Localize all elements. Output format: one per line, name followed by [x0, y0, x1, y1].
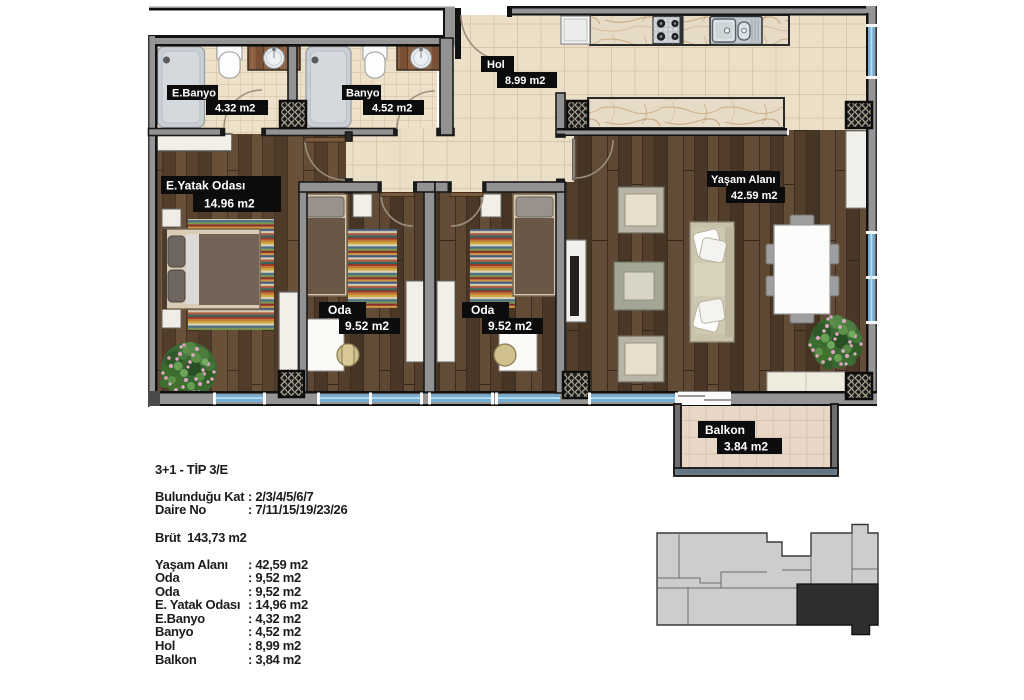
- svg-text:4.52 m2: 4.52 m2: [372, 103, 412, 115]
- svg-text:Oda: Oda: [471, 303, 495, 317]
- svg-text:3.84 m2: 3.84 m2: [724, 440, 768, 454]
- svg-text:E.Banyo: E.Banyo: [172, 88, 216, 100]
- svg-text:4.32 m2: 4.32 m2: [215, 103, 255, 115]
- svg-text:Banyo: Banyo: [346, 88, 380, 100]
- svg-text:9.52 m2: 9.52 m2: [345, 319, 389, 333]
- svg-text:E.Yatak Odası: E.Yatak Odası: [166, 179, 245, 193]
- svg-text:42.59 m2: 42.59 m2: [731, 190, 777, 202]
- svg-text:Balkon: Balkon: [705, 423, 745, 437]
- svg-text:Yaşam Alanı: Yaşam Alanı: [711, 174, 775, 186]
- svg-text:9.52 m2: 9.52 m2: [488, 319, 532, 333]
- svg-text:14.96 m2: 14.96 m2: [204, 197, 255, 211]
- svg-text:Oda: Oda: [328, 303, 352, 317]
- svg-text:8.99 m2: 8.99 m2: [505, 75, 545, 87]
- svg-text:Hol: Hol: [487, 59, 505, 71]
